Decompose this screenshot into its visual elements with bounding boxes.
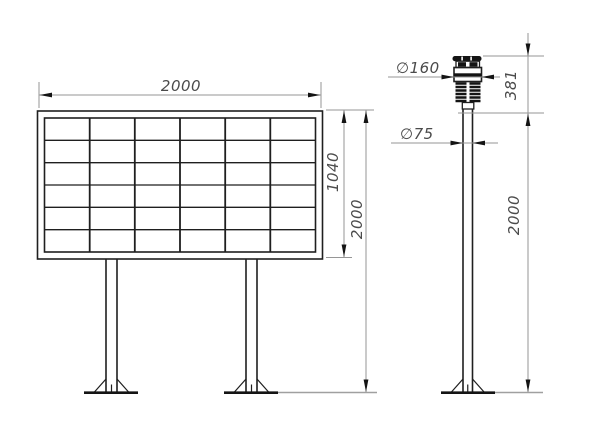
- cap-slit: [461, 57, 463, 61]
- arrowhead-up: [526, 114, 531, 127]
- panel-grid: [45, 118, 316, 252]
- arrowhead-up: [342, 111, 347, 124]
- arrowhead-down: [526, 380, 531, 393]
- label-panel-height: 1040: [324, 152, 342, 192]
- louver-block: [470, 62, 478, 66]
- dimension-board-total-height: 2000: [348, 111, 368, 393]
- label-pole-height: 2000: [505, 195, 523, 235]
- technical-drawing-sheet: 2000 1040 2000: [0, 0, 600, 422]
- dimension-pole-diameter: ∅75: [391, 125, 498, 145]
- side-view-pole: [441, 56, 495, 393]
- arrowhead-left: [40, 93, 53, 98]
- support-legs: [106, 259, 257, 393]
- front-view-board: [38, 111, 323, 393]
- right-base-plate: [224, 379, 278, 393]
- arrowhead-right: [442, 75, 455, 80]
- label-head-height: 381: [502, 70, 520, 100]
- arrowhead-right: [308, 93, 321, 98]
- pole-base-plate: [441, 379, 495, 393]
- arrowhead-down: [526, 44, 531, 57]
- arrowhead-left: [473, 141, 486, 146]
- label-board-total-height: 2000: [348, 199, 366, 239]
- sensor-head: [453, 56, 482, 109]
- label-pole-diameter: ∅75: [400, 125, 434, 143]
- sensor-neck: [462, 103, 474, 110]
- dimension-pole-height: 2000: [505, 195, 530, 392]
- sensor-cap: [453, 56, 482, 61]
- dimension-board-width: 2000: [39, 77, 321, 108]
- arrowhead-right: [451, 141, 464, 146]
- cap-slit: [470, 57, 472, 61]
- arrowhead-down: [364, 380, 369, 393]
- arrowhead-up: [364, 111, 369, 124]
- label-board-width: 2000: [161, 77, 201, 95]
- sensor-fins: [456, 84, 481, 102]
- louver-block: [458, 62, 466, 66]
- pole: [463, 109, 473, 393]
- dimension-head-diameter: ∅160: [388, 59, 500, 79]
- arrowhead-down: [342, 245, 347, 258]
- left-base-plate: [84, 379, 138, 393]
- arrowhead-left: [482, 75, 495, 80]
- label-head-diameter: ∅160: [396, 59, 440, 77]
